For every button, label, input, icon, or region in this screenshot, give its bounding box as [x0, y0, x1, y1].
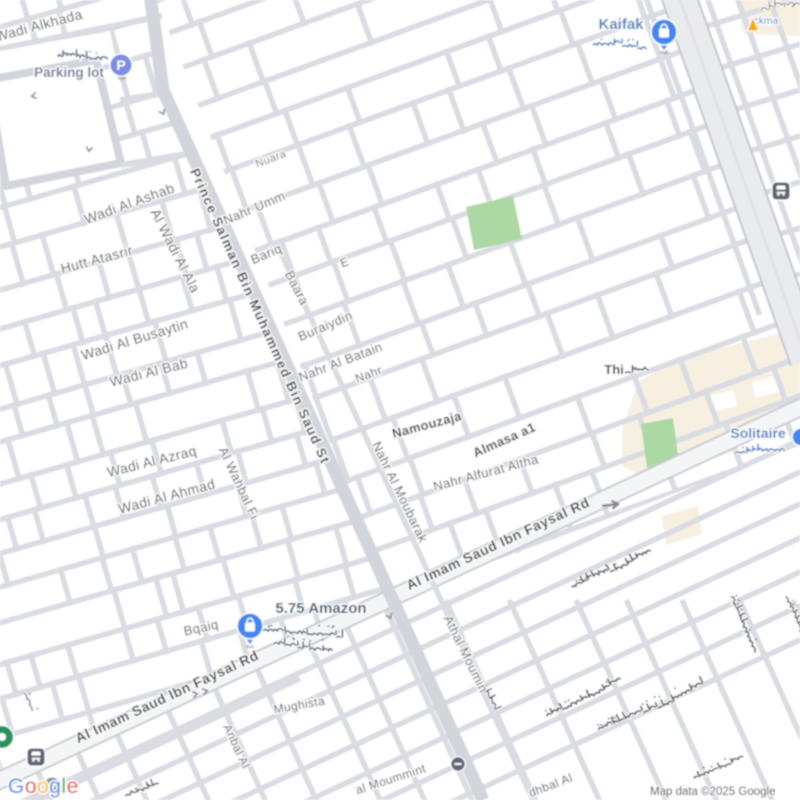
svg-text:5.75 Amazon: 5.75 Amazon: [275, 600, 366, 617]
svg-text:Parking lot: Parking lot: [34, 65, 104, 80]
svg-text:ckma: ckma: [754, 16, 779, 27]
svg-text:Map data ©2025 Google: Map data ©2025 Google: [650, 786, 775, 798]
svg-text:Solitaire: Solitaire: [730, 425, 785, 441]
svg-text:Kaifak: Kaifak: [598, 16, 644, 33]
svg-text:Google: Google: [8, 775, 79, 798]
svg-text:P: P: [116, 57, 125, 73]
svg-text:Thi: Thi: [604, 362, 624, 377]
